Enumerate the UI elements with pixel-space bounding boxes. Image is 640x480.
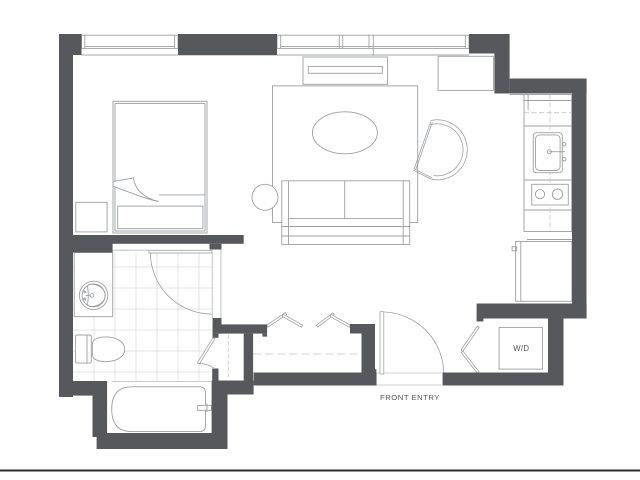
svg-text:W/D: W/D [513, 344, 529, 353]
svg-text:FRONT ENTRY: FRONT ENTRY [380, 393, 440, 402]
